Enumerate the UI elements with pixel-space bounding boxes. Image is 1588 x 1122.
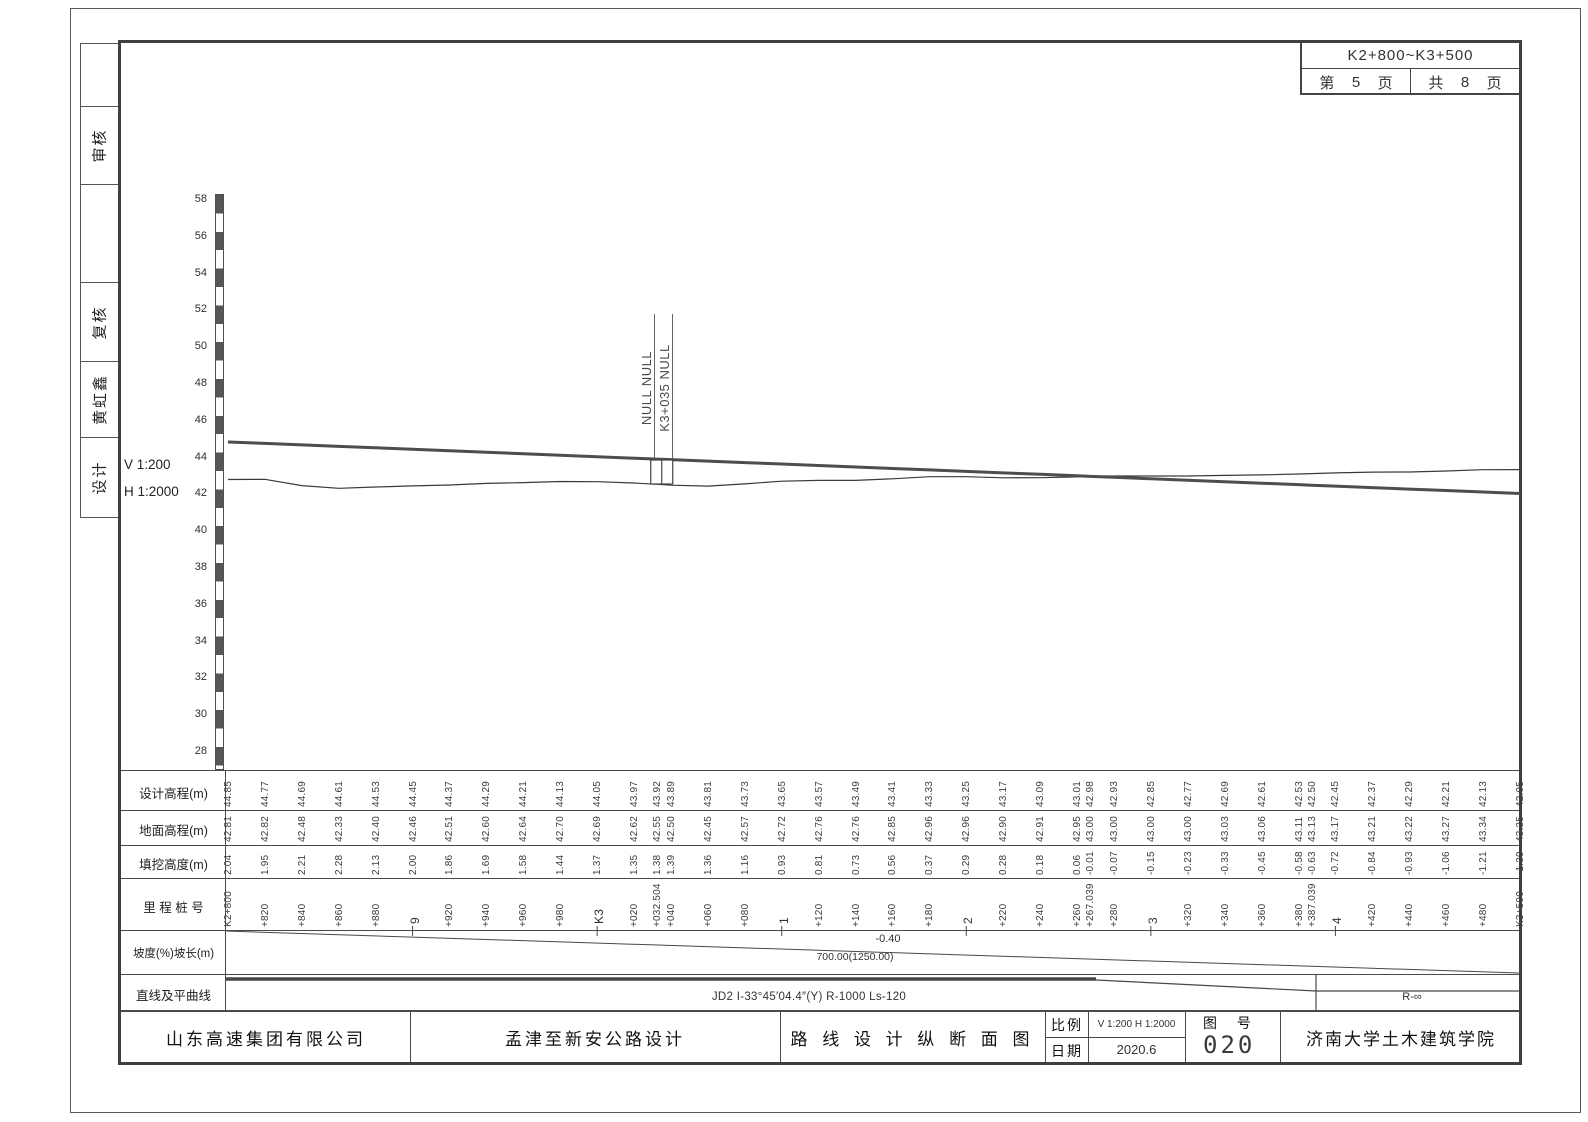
ground-elevation-value: 43.00 — [1085, 816, 1096, 842]
table-rule — [121, 810, 1519, 811]
sheet-header-box: K2+800~K3+500 第 5 页 共 8 页 — [1300, 43, 1519, 95]
curve-parameters-text: JD2 I-33°45′04.4″(Y) R-1000 Ls-120 — [629, 991, 989, 1003]
ground-elevation-value: 42.50 — [666, 816, 677, 842]
design-elevation-value: 42.53 — [1294, 781, 1305, 807]
ground-elevation-value: 43.11 — [1294, 817, 1305, 842]
scale-field-label: 比例 — [1051, 1015, 1083, 1035]
station-label: K2+800 — [223, 891, 234, 927]
table-rule — [121, 930, 1519, 931]
slope-length-value: 700.00(1250.00) — [793, 951, 917, 963]
ground-elevation-value: 42.81 — [223, 816, 234, 842]
major-station-label: 2 — [962, 917, 975, 924]
scale-field-value: V 1:200 H 1:2000 — [1089, 1019, 1184, 1030]
date-field-label: 日期 — [1051, 1041, 1083, 1061]
figure-number-value: 020 — [1203, 1031, 1255, 1059]
ground-elevation-value: 42.91 — [1035, 816, 1046, 842]
y-axis-tick-label: 38 — [181, 561, 207, 573]
cut-fill-value: 1.35 — [629, 855, 640, 875]
cut-fill-value: 0.73 — [851, 855, 862, 875]
table-rule — [121, 974, 1519, 975]
institute-name: 济南大学土木建筑学院 — [1280, 1012, 1522, 1062]
ground-elevation-value: 42.40 — [371, 816, 382, 842]
y-axis-tick-label: 58 — [181, 193, 207, 205]
station-label: +420 — [1367, 904, 1378, 927]
row-label-alignment: 直线及平曲线 — [123, 985, 224, 1004]
design-elevation-value: 42.21 — [1441, 781, 1452, 807]
station-label: +280 — [1109, 904, 1120, 927]
design-elevation-value: 43.17 — [998, 781, 1009, 807]
cut-fill-value: -0.84 — [1367, 851, 1378, 875]
h-scale-label: H 1:2000 — [124, 484, 179, 499]
total-prefix: 共 — [1428, 72, 1443, 93]
y-axis-tick-label: 48 — [181, 377, 207, 389]
sidebar-cell-checker: 复核 — [80, 282, 119, 362]
y-axis-tick-label: 44 — [181, 451, 207, 463]
cut-fill-value: 1.69 — [481, 855, 492, 875]
ground-elevation-value: 42.90 — [998, 816, 1009, 842]
station-label: +267.039 — [1085, 883, 1096, 927]
ground-elevation-value: 42.76 — [851, 816, 862, 842]
ground-elevation-value: 42.60 — [481, 816, 492, 842]
ground-elevation-value: 43.22 — [1404, 816, 1415, 842]
y-axis-tick-label: 40 — [181, 524, 207, 536]
ground-elevation-value: 42.95 — [1072, 816, 1083, 842]
ground-elevation-value: 42.70 — [555, 816, 566, 842]
station-label: +380 — [1294, 904, 1305, 927]
major-station-label: 9 — [409, 917, 422, 924]
design-elevation-value: 43.92 — [652, 781, 663, 807]
ground-elevation-value: 43.00 — [1183, 816, 1194, 842]
sidebar-cell-designer: 设计 — [80, 437, 119, 518]
design-elevation-value: 44.05 — [592, 781, 603, 807]
grade-value: -0.40 — [848, 933, 928, 945]
y-axis-tick-label: 46 — [181, 414, 207, 426]
major-station-label: K3 — [593, 909, 606, 924]
cut-fill-value: 2.00 — [408, 855, 419, 875]
cut-fill-value: 1.86 — [444, 855, 455, 875]
row-label-grade-length: 坡度(%)坡长(m) — [123, 945, 224, 961]
sidebar-label-shenhe: 审核 — [89, 128, 110, 162]
cut-fill-value: -0.23 — [1183, 851, 1194, 875]
cut-fill-value: 0.81 — [814, 855, 825, 875]
cut-fill-value: -0.15 — [1146, 851, 1157, 875]
v-scale-label: V 1:200 — [124, 457, 171, 472]
station-label: +140 — [851, 904, 862, 927]
major-station-label: 3 — [1147, 917, 1160, 924]
station-label: +820 — [260, 904, 271, 927]
cut-fill-value: 0.56 — [887, 855, 898, 875]
station-label: +840 — [297, 904, 308, 927]
y-axis-tick-label: 50 — [181, 340, 207, 352]
project-name: 孟津至新安公路设计 — [410, 1012, 780, 1062]
station-label: +860 — [334, 904, 345, 927]
page-prefix: 第 — [1319, 72, 1334, 93]
cut-fill-value: 2.13 — [371, 855, 382, 875]
page-number: 5 — [1352, 74, 1360, 91]
design-elevation-value: 43.25 — [961, 781, 972, 807]
cut-fill-value: 1.38 — [652, 855, 663, 875]
tangent-radius-text: R-∞ — [1362, 991, 1462, 1003]
design-elevation-value: 42.29 — [1404, 781, 1415, 807]
station-label: +240 — [1035, 904, 1046, 927]
cut-fill-value: 1.36 — [703, 855, 714, 875]
y-axis-tick-label: 52 — [181, 303, 207, 315]
design-elevation-value: 43.73 — [740, 781, 751, 807]
design-elevation-value: 44.21 — [518, 781, 529, 807]
design-elevation-value: 43.01 — [1072, 781, 1083, 807]
sidebar-cell-designer-name: 黄虹鑫 — [80, 361, 119, 438]
ground-elevation-value: 42.64 — [518, 816, 529, 842]
ground-elevation-value: 42.57 — [740, 816, 751, 842]
cut-fill-value: 2.21 — [297, 855, 308, 875]
row-label-ground-elevation: 地面高程(m) — [123, 820, 224, 839]
station-label: +960 — [518, 904, 529, 927]
date-field-value: 2020.6 — [1089, 1042, 1184, 1057]
station-label: +180 — [924, 904, 935, 927]
cut-fill-value: 0.93 — [777, 855, 788, 875]
sidebar-cell-empty-1 — [80, 43, 119, 107]
station-label: +460 — [1441, 904, 1452, 927]
station-label: +080 — [740, 904, 751, 927]
cut-fill-value: -0.72 — [1330, 851, 1341, 875]
design-elevation-value: 44.69 — [297, 781, 308, 807]
cut-fill-value: 0.37 — [924, 855, 935, 875]
station-label: +440 — [1404, 904, 1415, 927]
design-elevation-value: 43.97 — [629, 781, 640, 807]
design-elevation-value: 42.05 — [1515, 781, 1526, 807]
ground-elevation-value: 42.51 — [444, 816, 455, 842]
station-label: +880 — [371, 904, 382, 927]
ground-elevation-value: 42.46 — [408, 816, 419, 842]
design-elevation-value: 42.61 — [1257, 781, 1268, 807]
design-elevation-value: 44.61 — [334, 781, 345, 807]
ground-elevation-value: 42.48 — [297, 816, 308, 842]
design-elevation-value: 44.53 — [371, 781, 382, 807]
total-suffix: 页 — [1487, 72, 1502, 93]
table-rule — [121, 770, 1519, 771]
cut-fill-value: 1.95 — [260, 855, 271, 875]
cut-fill-value: 1.58 — [518, 855, 529, 875]
station-label: +320 — [1183, 904, 1194, 927]
station-label: +160 — [887, 904, 898, 927]
annotation-text-line1: NULL NULL — [639, 314, 655, 462]
page-suffix: 页 — [1378, 72, 1393, 93]
title-block-divider — [1185, 1012, 1186, 1062]
station-label: +340 — [1220, 904, 1231, 927]
ground-elevation-value: 43.00 — [1146, 816, 1157, 842]
y-axis-tick-label: 34 — [181, 635, 207, 647]
ground-elevation-value: 42.45 — [703, 816, 714, 842]
station-label: +980 — [555, 904, 566, 927]
cut-fill-value: 1.39 — [666, 855, 677, 875]
sidebar-label-designer-name: 黄虹鑫 — [89, 374, 110, 425]
ground-elevation-value: 42.76 — [814, 816, 825, 842]
annotation-text-line2: K3+035 NULL — [657, 314, 673, 462]
station-label: +387.039 — [1307, 883, 1318, 927]
sheet-page-row: 第 5 页 共 8 页 — [1302, 69, 1519, 95]
design-elevation-value: 42.93 — [1109, 781, 1120, 807]
design-elevation-value: 42.69 — [1220, 781, 1231, 807]
drawing-title: 路 线 设 计 纵 断 面 图 — [780, 1012, 1045, 1062]
cut-fill-value: 1.16 — [740, 855, 751, 875]
design-elevation-value: 42.37 — [1367, 781, 1378, 807]
elevation-axis-bar — [215, 194, 224, 770]
station-label: +940 — [481, 904, 492, 927]
cut-fill-value: -0.58 — [1294, 851, 1305, 875]
design-elevation-value: 44.45 — [408, 781, 419, 807]
ground-elevation-value: 43.27 — [1441, 816, 1452, 842]
ground-elevation-value: 43.21 — [1367, 816, 1378, 842]
ground-elevation-value: 43.34 — [1478, 816, 1489, 842]
row-label-design-elevation: 设计高程(m) — [123, 783, 224, 802]
design-elevation-value: 43.33 — [924, 781, 935, 807]
sidebar-label-sheji: 设计 — [89, 460, 110, 494]
cut-fill-value: 1.44 — [555, 855, 566, 875]
total-pages-cell: 共 8 页 — [1410, 69, 1519, 95]
ground-elevation-value: 42.55 — [652, 816, 663, 842]
design-elevation-value: 42.50 — [1307, 781, 1318, 807]
ground-elevation-value: 42.33 — [334, 816, 345, 842]
table-rule — [121, 878, 1519, 879]
cut-fill-value: 0.06 — [1072, 855, 1083, 875]
drawing-sheet: 审核 复核 黄虹鑫 设计 K2+800~K3+500 第 5 页 共 8 页 V… — [0, 0, 1588, 1122]
design-elevation-value: 43.57 — [814, 781, 825, 807]
cut-fill-value: 2.28 — [334, 855, 345, 875]
design-elevation-value: 44.85 — [223, 781, 234, 807]
cut-fill-value: 0.28 — [998, 855, 1009, 875]
station-label: +360 — [1257, 904, 1268, 927]
station-label: +920 — [444, 904, 455, 927]
y-axis-tick-label: 42 — [181, 487, 207, 499]
cut-fill-value: 0.29 — [961, 855, 972, 875]
table-rule — [121, 845, 1519, 846]
ground-elevation-value: 43.35 — [1515, 816, 1526, 842]
cut-fill-value: 0.18 — [1035, 855, 1046, 875]
station-label: K3+500 — [1515, 891, 1526, 927]
station-label: +040 — [666, 904, 677, 927]
ground-elevation-value: 42.72 — [777, 816, 788, 842]
sidebar-label-fuhe: 复核 — [89, 305, 110, 339]
ground-elevation-value: 42.96 — [924, 816, 935, 842]
design-elevation-value: 44.29 — [481, 781, 492, 807]
station-label: +032.504 — [652, 883, 663, 927]
y-axis-tick-label: 32 — [181, 671, 207, 683]
ground-elevation-value: 42.69 — [592, 816, 603, 842]
station-label: +060 — [703, 904, 714, 927]
ground-elevation-value: 43.13 — [1307, 816, 1318, 842]
design-elevation-value: 42.98 — [1085, 781, 1096, 807]
cut-fill-value: -0.33 — [1220, 851, 1231, 875]
station-label: +020 — [629, 904, 640, 927]
ground-elevation-value: 42.62 — [629, 816, 640, 842]
station-range: K2+800~K3+500 — [1302, 43, 1519, 69]
cut-fill-value: 1.37 — [592, 855, 603, 875]
ground-elevation-value: 42.85 — [887, 816, 898, 842]
cut-fill-value: -0.63 — [1307, 851, 1318, 875]
design-elevation-value: 44.37 — [444, 781, 455, 807]
ground-elevation-value: 43.03 — [1220, 816, 1231, 842]
design-elevation-value: 44.13 — [555, 781, 566, 807]
cut-fill-value: -0.45 — [1257, 851, 1268, 875]
y-axis-tick-label: 36 — [181, 598, 207, 610]
design-elevation-value: 43.65 — [777, 781, 788, 807]
y-axis-tick-label: 54 — [181, 267, 207, 279]
design-elevation-value: 42.85 — [1146, 781, 1157, 807]
row-label-fill-cut: 填挖高度(m) — [123, 854, 224, 873]
design-elevation-value: 42.45 — [1330, 781, 1341, 807]
ground-elevation-value: 43.17 — [1330, 816, 1341, 842]
y-axis-tick-label: 56 — [181, 230, 207, 242]
design-elevation-value: 44.77 — [260, 781, 271, 807]
station-label: +220 — [998, 904, 1009, 927]
cut-fill-value: -0.07 — [1109, 851, 1120, 875]
company-name: 山东高速集团有限公司 — [122, 1012, 410, 1062]
figure-number-label: 图 号 — [1203, 1013, 1259, 1033]
y-axis-tick-label: 28 — [181, 745, 207, 757]
total-pages: 8 — [1461, 74, 1469, 91]
y-axis-tick-label: 30 — [181, 708, 207, 720]
design-elevation-value: 43.49 — [851, 781, 862, 807]
design-elevation-value: 43.41 — [887, 781, 898, 807]
design-elevation-value: 43.89 — [666, 781, 677, 807]
cut-fill-value: 2.04 — [223, 855, 234, 875]
station-label: +260 — [1072, 904, 1083, 927]
design-elevation-value: 43.81 — [703, 781, 714, 807]
design-elevation-value: 42.13 — [1478, 781, 1489, 807]
station-label: +480 — [1478, 904, 1489, 927]
title-block-inner-rule — [1045, 1037, 1185, 1038]
major-station-label: 1 — [778, 917, 791, 924]
ground-elevation-value: 42.82 — [260, 816, 271, 842]
ground-elevation-value: 43.00 — [1109, 816, 1120, 842]
design-elevation-value: 43.09 — [1035, 781, 1046, 807]
cut-fill-value: -1.06 — [1441, 851, 1452, 875]
major-station-label: 4 — [1331, 917, 1344, 924]
cut-fill-value: -1.30 — [1515, 851, 1526, 875]
sidebar-cell-empty-2 — [80, 184, 119, 283]
design-elevation-value: 42.77 — [1183, 781, 1194, 807]
cut-fill-value: -0.93 — [1404, 851, 1415, 875]
row-label-station: 里 程 桩 号 — [123, 897, 224, 916]
cut-fill-value: -1.21 — [1478, 851, 1489, 875]
ground-elevation-value: 43.06 — [1257, 816, 1268, 842]
station-label: +120 — [814, 904, 825, 927]
sidebar-cell-reviewer: 审核 — [80, 106, 119, 185]
page-number-cell: 第 5 页 — [1302, 69, 1410, 95]
ground-elevation-value: 42.96 — [961, 816, 972, 842]
cut-fill-value: -0.01 — [1085, 851, 1096, 875]
